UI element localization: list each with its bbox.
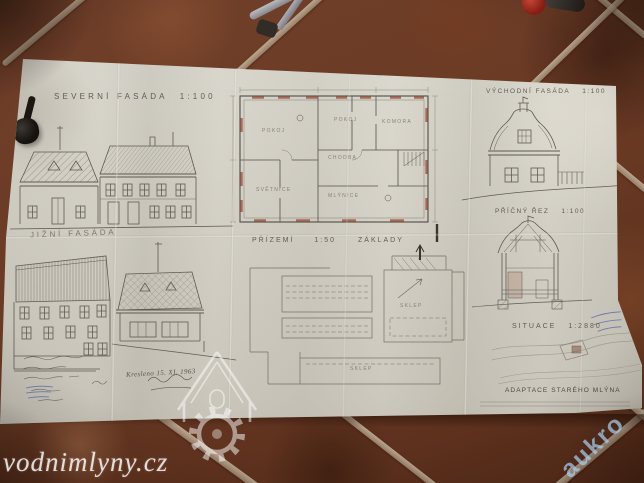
scale-text: 1:100 xyxy=(561,208,585,215)
north-facade-drawing xyxy=(10,126,233,229)
tile-grout-line xyxy=(1,0,104,67)
foundations-plan-drawing xyxy=(250,256,464,384)
label-text: SEVERNÍ FASÁDA xyxy=(54,92,168,101)
handwriting-left xyxy=(23,356,107,401)
watermill-logo-watermark xyxy=(158,348,276,466)
cross-section-drawing xyxy=(472,216,592,309)
label-text: SITUACE xyxy=(512,323,556,330)
room-label: POKOJ xyxy=(262,128,285,134)
project-title: ADAPTACE STARÉHO MLÝNA xyxy=(505,387,621,394)
scale-text: 1:100 xyxy=(180,92,216,101)
room-label: KOMORA xyxy=(382,119,412,125)
room-label: CHODBA xyxy=(328,155,357,161)
cellar-label: SKLEP xyxy=(350,366,373,372)
label-foundations: ZÁKLADY xyxy=(358,237,404,244)
label-text: ADAPTACE STARÉHO MLÝNA xyxy=(505,387,621,394)
scene: SEVERNÍ FASÁDA1:100 VÝCHODNÍ FASÁDA1:100… xyxy=(0,0,644,483)
room-label: SVĚTNICE xyxy=(256,187,291,193)
label-cross-section: PŘÍČNÝ ŘEZ1:100 xyxy=(495,208,585,215)
room-label: MLÝNICE xyxy=(328,193,359,199)
label-text: PŘÍČNÝ ŘEZ xyxy=(495,208,549,215)
scale-text: 1:2880 xyxy=(568,323,601,330)
label-text: ZÁKLADY xyxy=(358,237,404,244)
label-north-facade: SEVERNÍ FASÁDA1:100 xyxy=(54,92,216,101)
vodnimlyny-watermark: vodnimlyny.cz xyxy=(3,447,168,478)
label-ground-floor: PŘÍZEMÍ1:50 xyxy=(252,237,336,244)
cellar-label: SKLEP xyxy=(400,303,423,309)
scale-text: 1:50 xyxy=(314,237,336,244)
label-site-plan: SITUACE1:2880 xyxy=(512,323,602,330)
label-text: PŘÍZEMÍ xyxy=(252,237,294,244)
site-plan-drawing xyxy=(492,330,643,384)
room-label: POKOJ xyxy=(334,117,357,123)
label-east-facade: VÝCHODNÍ FASÁDA1:100 xyxy=(486,88,606,95)
scale-text: 1:100 xyxy=(582,88,606,95)
blue-stamp xyxy=(26,386,53,398)
pencil-marks xyxy=(416,224,437,260)
title-block-lines xyxy=(480,402,630,406)
east-facade-drawing xyxy=(462,97,636,200)
label-text: VÝCHODNÍ FASÁDA xyxy=(486,88,570,95)
